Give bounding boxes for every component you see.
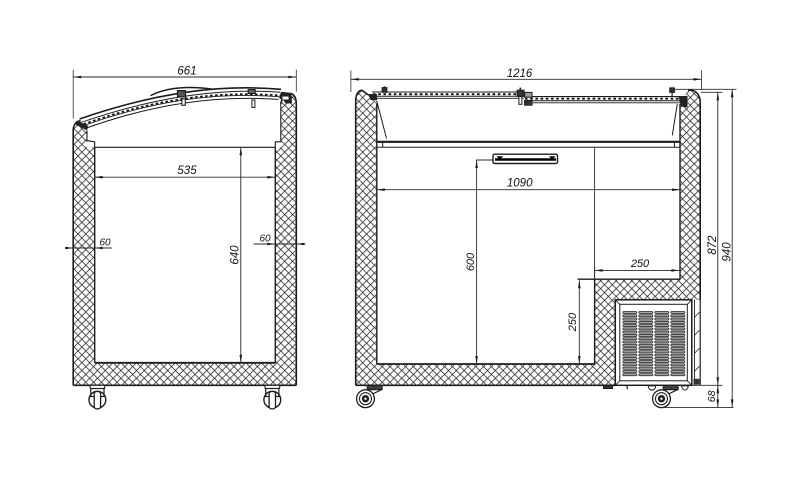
- svg-text:872: 872: [707, 235, 719, 255]
- svg-text:68: 68: [706, 390, 718, 402]
- svg-text:640: 640: [229, 245, 241, 265]
- svg-text:250: 250: [630, 258, 650, 270]
- svg-text:535: 535: [177, 165, 197, 177]
- svg-text:940: 940: [721, 242, 733, 262]
- svg-text:600: 600: [465, 252, 477, 271]
- svg-text:1216: 1216: [507, 68, 533, 80]
- svg-text:60: 60: [99, 237, 111, 248]
- svg-text:250: 250: [567, 312, 579, 332]
- svg-text:661: 661: [177, 65, 196, 77]
- svg-text:60: 60: [259, 234, 271, 245]
- svg-text:1090: 1090: [507, 178, 533, 190]
